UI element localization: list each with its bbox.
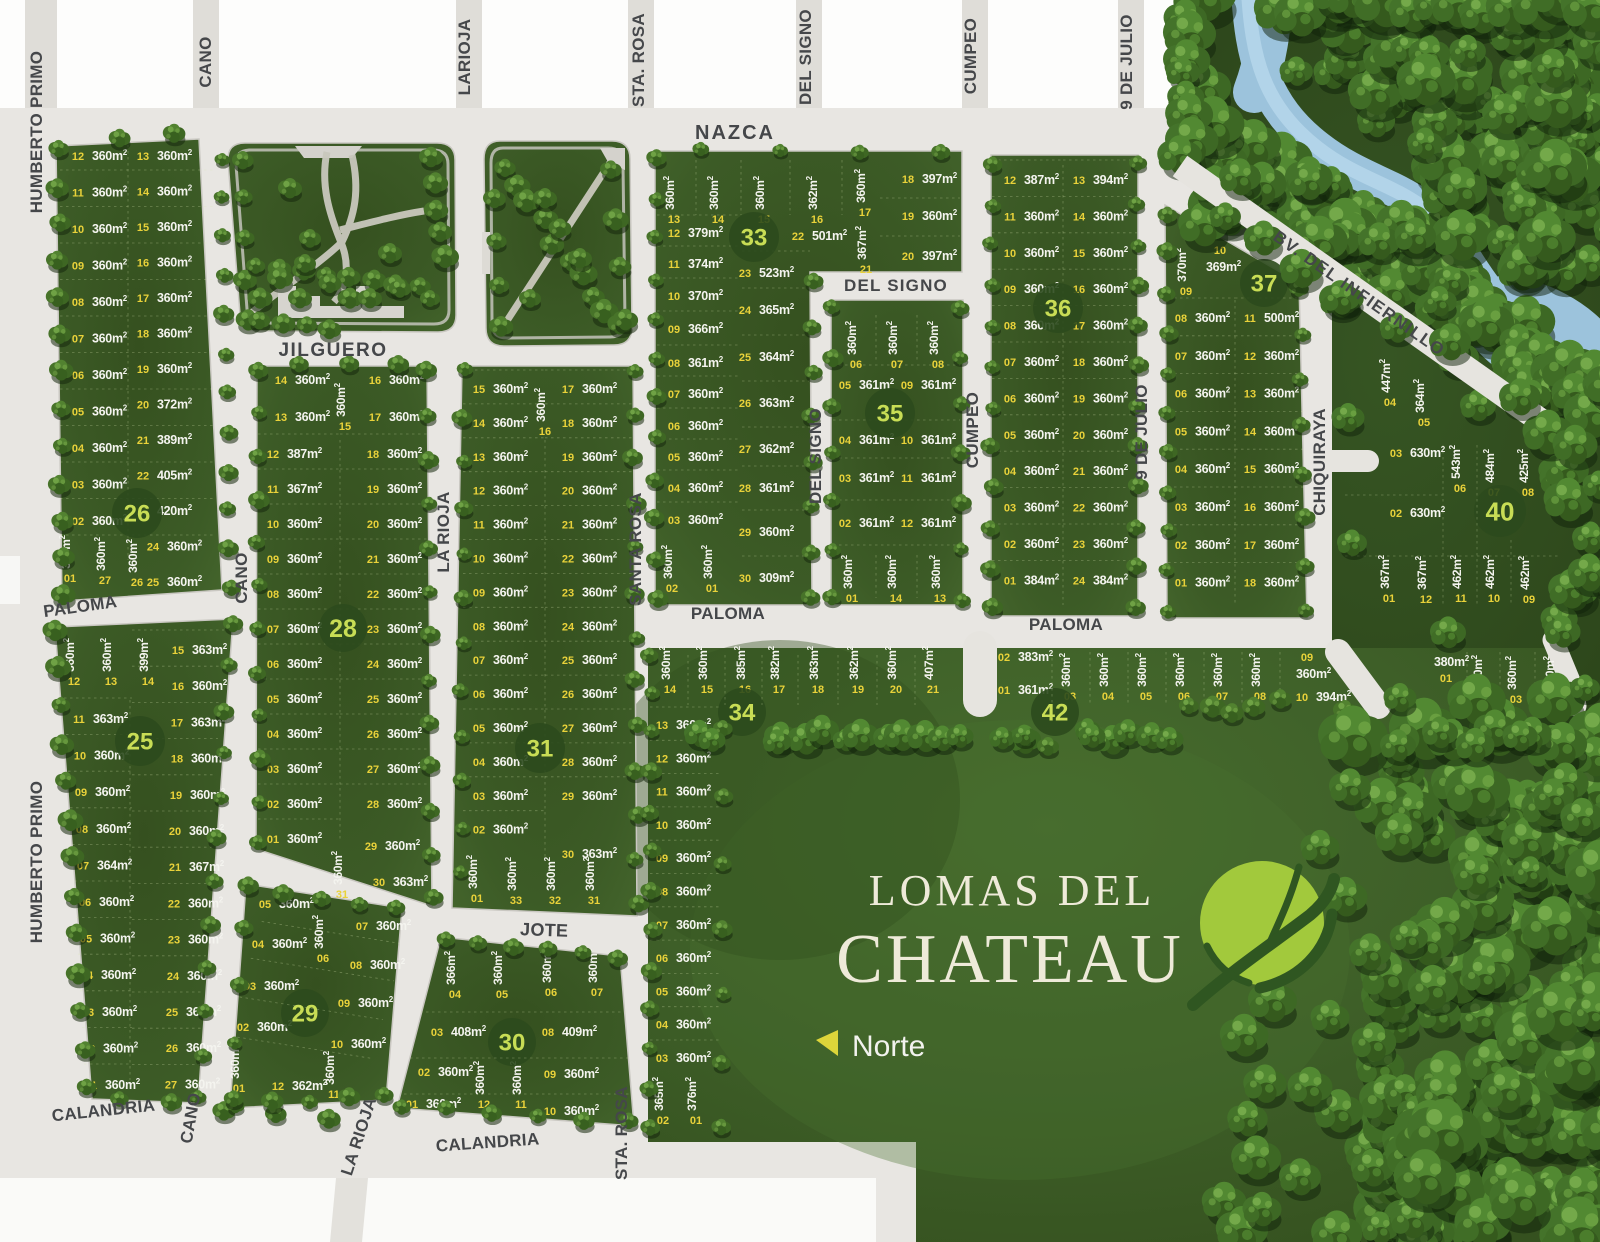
svg-text:22: 22 <box>168 898 180 910</box>
svg-text:361m2: 361m2 <box>859 470 895 485</box>
svg-text:16: 16 <box>172 681 184 693</box>
svg-text:425m2: 425m2 <box>1516 448 1531 483</box>
svg-text:26: 26 <box>131 577 143 589</box>
svg-text:35: 35 <box>877 401 904 428</box>
svg-text:08: 08 <box>267 589 279 601</box>
svg-text:26: 26 <box>367 729 379 741</box>
svg-text:12: 12 <box>68 676 80 688</box>
svg-text:523m2: 523m2 <box>759 265 795 280</box>
svg-text:08: 08 <box>473 621 485 633</box>
svg-text:360m2: 360m2 <box>688 512 724 527</box>
svg-text:05: 05 <box>839 380 851 392</box>
svg-text:367m2: 367m2 <box>1414 555 1429 590</box>
svg-text:09: 09 <box>72 261 84 273</box>
svg-text:14: 14 <box>275 375 288 387</box>
svg-text:04: 04 <box>668 483 681 495</box>
svg-text:384m2: 384m2 <box>1093 572 1129 587</box>
svg-text:360m2: 360m2 <box>295 409 331 424</box>
svg-text:09: 09 <box>1523 594 1535 606</box>
svg-text:360m2: 360m2 <box>1024 463 1060 478</box>
svg-text:04: 04 <box>72 443 85 455</box>
svg-text:360m2: 360m2 <box>1024 536 1060 551</box>
svg-text:11: 11 <box>668 259 680 271</box>
svg-text:360m2: 360m2 <box>926 320 941 355</box>
svg-text:11: 11 <box>72 188 84 200</box>
svg-text:21: 21 <box>1073 466 1085 478</box>
svg-text:05: 05 <box>496 989 508 1001</box>
svg-text:360m2: 360m2 <box>1096 652 1111 687</box>
svg-text:360m2: 360m2 <box>493 415 529 430</box>
svg-text:13: 13 <box>934 593 946 605</box>
svg-text:14: 14 <box>1073 211 1086 223</box>
svg-text:360m2: 360m2 <box>582 686 618 701</box>
svg-text:19: 19 <box>562 452 574 464</box>
svg-text:07: 07 <box>356 921 368 933</box>
svg-text:LARIOJA: LARIOJA <box>455 19 474 96</box>
svg-text:06: 06 <box>317 953 329 965</box>
svg-text:02: 02 <box>666 583 678 595</box>
svg-text:33: 33 <box>510 895 522 907</box>
svg-text:360m2: 360m2 <box>287 621 323 636</box>
svg-text:26: 26 <box>739 398 751 410</box>
svg-text:360m2: 360m2 <box>322 1050 337 1085</box>
svg-text:360m2: 360m2 <box>387 516 423 531</box>
svg-text:462m2: 462m2 <box>1449 554 1464 589</box>
svg-text:05: 05 <box>656 986 668 998</box>
svg-text:360m2: 360m2 <box>676 983 712 998</box>
svg-text:18: 18 <box>1073 357 1085 369</box>
svg-text:376m2: 376m2 <box>684 1076 699 1111</box>
svg-text:29: 29 <box>562 791 574 803</box>
svg-text:360m2: 360m2 <box>157 219 193 234</box>
svg-text:360m2: 360m2 <box>157 255 193 270</box>
svg-text:04: 04 <box>1384 397 1397 409</box>
svg-text:19: 19 <box>170 790 182 802</box>
svg-text:36: 36 <box>1045 296 1072 323</box>
svg-text:360m2: 360m2 <box>493 686 529 701</box>
svg-text:10: 10 <box>656 820 668 832</box>
svg-text:CHATEAU: CHATEAU <box>836 921 1184 998</box>
svg-text:20: 20 <box>890 684 902 696</box>
svg-text:360m2: 360m2 <box>188 895 224 910</box>
svg-text:360m2: 360m2 <box>1024 208 1060 223</box>
svg-text:01: 01 <box>1004 575 1016 587</box>
svg-text:361m2: 361m2 <box>921 432 957 447</box>
svg-text:500m2: 500m2 <box>1264 310 1300 325</box>
svg-text:01: 01 <box>1440 673 1452 685</box>
svg-text:03: 03 <box>1004 503 1016 515</box>
svg-text:DEL SIGNO: DEL SIGNO <box>796 9 815 105</box>
svg-text:27: 27 <box>165 1079 177 1091</box>
svg-text:20: 20 <box>367 519 379 531</box>
svg-text:25: 25 <box>147 577 159 589</box>
svg-text:19: 19 <box>902 211 914 223</box>
svg-text:16: 16 <box>539 426 551 438</box>
svg-text:360m2: 360m2 <box>676 817 712 832</box>
svg-text:20: 20 <box>1073 430 1085 442</box>
svg-text:20: 20 <box>902 251 914 263</box>
svg-text:364m2: 364m2 <box>97 857 133 872</box>
svg-text:360m2: 360m2 <box>99 894 135 909</box>
svg-text:23: 23 <box>168 935 180 947</box>
svg-text:360m2: 360m2 <box>533 387 548 422</box>
svg-text:360m2: 360m2 <box>101 967 137 982</box>
svg-text:17: 17 <box>1244 540 1256 552</box>
svg-text:08: 08 <box>668 358 680 370</box>
svg-text:20: 20 <box>562 486 574 498</box>
svg-text:19: 19 <box>137 364 149 376</box>
svg-text:17: 17 <box>137 293 149 305</box>
svg-text:17: 17 <box>859 207 871 219</box>
svg-text:09: 09 <box>338 998 350 1010</box>
svg-text:367m2: 367m2 <box>854 225 869 260</box>
svg-text:15: 15 <box>1073 248 1085 260</box>
svg-text:14: 14 <box>1244 426 1257 438</box>
svg-text:360m2: 360m2 <box>1296 666 1332 681</box>
svg-text:387m2: 387m2 <box>287 446 323 461</box>
svg-text:10: 10 <box>331 1039 343 1051</box>
svg-text:399m2: 399m2 <box>136 637 151 672</box>
svg-text:360m2: 360m2 <box>1195 461 1231 476</box>
svg-text:361m2: 361m2 <box>921 377 957 392</box>
svg-text:360m2: 360m2 <box>1093 463 1129 478</box>
svg-text:379m2: 379m2 <box>688 225 724 240</box>
svg-text:360m2: 360m2 <box>700 544 715 579</box>
svg-text:06: 06 <box>1175 389 1187 401</box>
svg-text:309m2: 309m2 <box>759 570 795 585</box>
svg-text:08: 08 <box>1004 321 1016 333</box>
svg-text:360m2: 360m2 <box>105 1077 141 1092</box>
svg-text:32: 32 <box>549 895 561 907</box>
svg-text:07: 07 <box>267 624 279 636</box>
svg-text:362m2: 362m2 <box>805 175 820 210</box>
svg-text:28: 28 <box>739 483 751 495</box>
svg-text:360m2: 360m2 <box>676 1050 712 1065</box>
svg-text:360m2: 360m2 <box>688 480 724 495</box>
svg-text:360m2: 360m2 <box>1093 536 1129 551</box>
svg-text:11: 11 <box>1244 313 1256 325</box>
svg-text:360m2: 360m2 <box>1093 245 1129 260</box>
svg-text:11: 11 <box>73 714 85 726</box>
svg-text:07: 07 <box>473 655 485 667</box>
svg-text:367m2: 367m2 <box>189 859 225 874</box>
svg-text:03: 03 <box>668 515 680 527</box>
svg-text:CANO: CANO <box>232 552 251 603</box>
svg-text:462m2: 462m2 <box>1482 554 1497 589</box>
svg-text:362m2: 362m2 <box>846 645 861 680</box>
svg-text:01: 01 <box>706 583 718 595</box>
svg-text:15: 15 <box>339 421 351 433</box>
svg-text:10: 10 <box>1004 248 1016 260</box>
svg-text:10: 10 <box>1296 692 1308 704</box>
svg-text:360m2: 360m2 <box>688 418 724 433</box>
svg-text:360m2: 360m2 <box>752 175 767 210</box>
svg-text:360m2: 360m2 <box>1093 318 1129 333</box>
svg-text:360m2: 360m2 <box>582 754 618 769</box>
svg-text:24: 24 <box>367 659 380 671</box>
svg-text:03: 03 <box>72 480 84 492</box>
svg-text:16: 16 <box>811 214 823 226</box>
svg-text:382m2: 382m2 <box>767 645 782 680</box>
svg-text:367m2: 367m2 <box>287 481 323 496</box>
svg-text:27: 27 <box>739 444 751 456</box>
svg-text:11: 11 <box>1455 593 1467 605</box>
svg-text:360m2: 360m2 <box>695 645 710 680</box>
svg-text:04: 04 <box>1004 466 1017 478</box>
svg-text:04: 04 <box>656 1020 669 1032</box>
svg-text:01: 01 <box>690 1115 702 1127</box>
svg-text:34: 34 <box>729 700 756 727</box>
svg-text:22: 22 <box>367 589 379 601</box>
svg-text:13: 13 <box>137 151 149 163</box>
svg-text:387m2: 387m2 <box>1024 172 1060 187</box>
svg-text:15: 15 <box>701 684 713 696</box>
svg-text:360m2: 360m2 <box>387 761 423 776</box>
svg-text:360m2: 360m2 <box>1093 281 1129 296</box>
svg-text:630m2: 630m2 <box>1410 505 1446 520</box>
svg-text:360m2: 360m2 <box>493 822 529 837</box>
svg-text:23: 23 <box>367 624 379 636</box>
svg-text:9 DE JULIO: 9 DE JULIO <box>1117 14 1136 110</box>
svg-text:360m2: 360m2 <box>493 483 529 498</box>
svg-text:360m2: 360m2 <box>582 856 597 891</box>
svg-text:14: 14 <box>137 187 150 199</box>
svg-text:18: 18 <box>171 754 183 766</box>
svg-text:360m2: 360m2 <box>1093 390 1129 405</box>
svg-text:484m2: 484m2 <box>1482 448 1497 483</box>
svg-text:360m2: 360m2 <box>1195 423 1231 438</box>
svg-text:10: 10 <box>901 435 913 447</box>
svg-text:360m2: 360m2 <box>676 884 712 899</box>
svg-text:06: 06 <box>72 370 84 382</box>
svg-text:10: 10 <box>1488 593 1500 605</box>
svg-text:30: 30 <box>373 877 385 889</box>
svg-text:11: 11 <box>473 520 485 532</box>
svg-text:360m2: 360m2 <box>157 326 193 341</box>
svg-text:02: 02 <box>839 518 851 530</box>
svg-text:409m2: 409m2 <box>562 1024 598 1039</box>
svg-text:08: 08 <box>72 297 84 309</box>
svg-text:20: 20 <box>169 826 181 838</box>
svg-text:360m2: 360m2 <box>92 404 128 419</box>
svg-text:10: 10 <box>668 291 680 303</box>
svg-text:21: 21 <box>860 264 872 276</box>
svg-text:543m2: 543m2 <box>1448 444 1463 479</box>
svg-text:28: 28 <box>329 615 357 643</box>
svg-text:360m2: 360m2 <box>287 551 323 566</box>
svg-text:360m2: 360m2 <box>103 1040 139 1055</box>
svg-text:360m2: 360m2 <box>490 950 505 985</box>
svg-text:13: 13 <box>275 412 287 424</box>
svg-text:360m2: 360m2 <box>1264 499 1300 514</box>
svg-text:360m2: 360m2 <box>99 637 114 672</box>
svg-text:360m2: 360m2 <box>885 320 900 355</box>
svg-text:01: 01 <box>267 834 279 846</box>
svg-text:360m2: 360m2 <box>92 440 128 455</box>
svg-text:08: 08 <box>542 1027 554 1039</box>
svg-text:360m2: 360m2 <box>676 784 712 799</box>
svg-text:360m2: 360m2 <box>658 645 673 680</box>
svg-text:12: 12 <box>473 486 485 498</box>
svg-text:367m2: 367m2 <box>1377 554 1392 589</box>
svg-text:12: 12 <box>272 1081 284 1093</box>
svg-text:02: 02 <box>237 1022 249 1034</box>
svg-text:27: 27 <box>562 723 574 735</box>
svg-text:360m2: 360m2 <box>387 446 423 461</box>
svg-text:09: 09 <box>1301 652 1313 664</box>
svg-text:360m2: 360m2 <box>582 720 618 735</box>
svg-text:360m2: 360m2 <box>192 678 228 693</box>
svg-text:09: 09 <box>1180 286 1192 298</box>
svg-text:40: 40 <box>1486 496 1515 526</box>
svg-text:360m2: 360m2 <box>330 850 345 885</box>
svg-text:03: 03 <box>1390 448 1402 460</box>
svg-text:370m2: 370m2 <box>688 288 724 303</box>
svg-text:360m2: 360m2 <box>582 788 618 803</box>
svg-text:394m2: 394m2 <box>1093 172 1129 187</box>
svg-text:360m2: 360m2 <box>333 382 348 417</box>
svg-text:02: 02 <box>1175 540 1187 552</box>
svg-text:04: 04 <box>1175 464 1188 476</box>
svg-text:360m2: 360m2 <box>1093 427 1129 442</box>
svg-text:360m2: 360m2 <box>582 652 618 667</box>
svg-text:360m2: 360m2 <box>287 761 323 776</box>
svg-text:360m2: 360m2 <box>1093 354 1129 369</box>
svg-text:42: 42 <box>1042 700 1069 727</box>
svg-text:360m2: 360m2 <box>1024 245 1060 260</box>
svg-text:Norte: Norte <box>852 1030 925 1063</box>
svg-text:18: 18 <box>137 329 149 341</box>
svg-text:05: 05 <box>473 723 485 735</box>
svg-text:17: 17 <box>773 684 785 696</box>
svg-text:10: 10 <box>267 519 279 531</box>
svg-text:360m2: 360m2 <box>1195 310 1231 325</box>
svg-text:02: 02 <box>418 1067 430 1079</box>
svg-text:372m2: 372m2 <box>157 397 193 412</box>
svg-text:31: 31 <box>527 736 554 763</box>
svg-text:360m2: 360m2 <box>157 148 193 163</box>
svg-text:25: 25 <box>367 694 379 706</box>
svg-text:04: 04 <box>252 939 265 951</box>
svg-text:04: 04 <box>1102 691 1115 703</box>
svg-text:360m2: 360m2 <box>582 618 618 633</box>
svg-text:31: 31 <box>588 895 600 907</box>
svg-text:30: 30 <box>562 849 574 861</box>
svg-text:360m2: 360m2 <box>370 957 406 972</box>
svg-text:10: 10 <box>74 751 86 763</box>
svg-text:363m2: 363m2 <box>806 645 821 680</box>
svg-text:360m2: 360m2 <box>922 208 958 223</box>
svg-text:360m2: 360m2 <box>1024 354 1060 369</box>
svg-text:07: 07 <box>1004 357 1016 369</box>
svg-text:28: 28 <box>562 757 574 769</box>
svg-text:13: 13 <box>1244 389 1256 401</box>
svg-text:12: 12 <box>267 449 279 461</box>
svg-text:360m2: 360m2 <box>582 415 618 430</box>
svg-text:08: 08 <box>1175 313 1187 325</box>
svg-text:STA. ROSA: STA. ROSA <box>629 13 648 107</box>
svg-text:397m2: 397m2 <box>922 171 958 186</box>
svg-text:360m2: 360m2 <box>157 361 193 376</box>
svg-text:360m2: 360m2 <box>287 796 323 811</box>
svg-text:360m2: 360m2 <box>543 856 558 891</box>
svg-text:360m2: 360m2 <box>1024 390 1060 405</box>
svg-text:360m2: 360m2 <box>582 483 618 498</box>
svg-text:03: 03 <box>1175 502 1187 514</box>
svg-text:360m2: 360m2 <box>1093 208 1129 223</box>
svg-text:08: 08 <box>1522 487 1534 499</box>
svg-text:360m2: 360m2 <box>92 331 128 346</box>
svg-text:361m2: 361m2 <box>921 470 957 485</box>
svg-text:25: 25 <box>562 655 574 667</box>
svg-text:HUMBERTO PRIMO: HUMBERTO PRIMO <box>27 781 46 944</box>
svg-text:360m2: 360m2 <box>287 656 323 671</box>
svg-text:28: 28 <box>367 799 379 811</box>
svg-text:CUMPEO: CUMPEO <box>963 392 982 468</box>
svg-text:22: 22 <box>792 231 804 243</box>
svg-text:397m2: 397m2 <box>922 248 958 263</box>
svg-text:16: 16 <box>1244 502 1256 514</box>
svg-text:10: 10 <box>473 554 485 566</box>
svg-text:09: 09 <box>1004 284 1016 296</box>
svg-text:374m2: 374m2 <box>688 256 724 271</box>
svg-text:11: 11 <box>515 1099 527 1111</box>
svg-text:360m2: 360m2 <box>582 449 618 464</box>
svg-text:25: 25 <box>739 352 751 364</box>
svg-text:360m2: 360m2 <box>272 936 308 951</box>
svg-text:12: 12 <box>656 753 668 765</box>
svg-text:02: 02 <box>267 799 279 811</box>
svg-text:360m2: 360m2 <box>493 584 529 599</box>
svg-text:360m2: 360m2 <box>676 850 712 865</box>
svg-text:361m2: 361m2 <box>688 355 724 370</box>
svg-text:13: 13 <box>668 214 680 226</box>
svg-text:05: 05 <box>1418 417 1430 429</box>
svg-text:9 DE JULIO: 9 DE JULIO <box>1132 384 1151 480</box>
svg-text:360m2: 360m2 <box>92 294 128 309</box>
svg-text:360m2: 360m2 <box>676 917 712 932</box>
svg-text:09: 09 <box>544 1069 556 1081</box>
svg-text:360m2: 360m2 <box>582 584 618 599</box>
svg-text:NAZCA: NAZCA <box>695 122 775 144</box>
svg-text:407m2: 407m2 <box>921 645 936 680</box>
svg-text:12: 12 <box>1244 351 1256 363</box>
svg-text:24: 24 <box>562 621 575 633</box>
svg-text:PALOMA: PALOMA <box>691 604 765 623</box>
svg-text:09: 09 <box>668 324 680 336</box>
svg-text:360m2: 360m2 <box>688 386 724 401</box>
svg-text:21: 21 <box>137 435 149 447</box>
svg-text:364m2: 364m2 <box>1412 378 1427 413</box>
svg-text:26: 26 <box>124 501 151 528</box>
svg-text:21: 21 <box>562 520 574 532</box>
svg-text:360m2: 360m2 <box>582 551 618 566</box>
svg-text:18: 18 <box>367 449 379 461</box>
svg-text:360m2: 360m2 <box>1195 348 1231 363</box>
svg-text:19: 19 <box>852 684 864 696</box>
svg-text:CUMPEO: CUMPEO <box>961 18 980 94</box>
svg-text:360m2: 360m2 <box>387 586 423 601</box>
svg-text:23: 23 <box>739 268 751 280</box>
svg-text:360m2: 360m2 <box>96 821 132 836</box>
svg-text:383m2: 383m2 <box>1018 649 1054 664</box>
svg-text:360m2: 360m2 <box>167 539 203 554</box>
svg-text:360m2: 360m2 <box>358 995 394 1010</box>
svg-text:06: 06 <box>1454 483 1466 495</box>
svg-text:24: 24 <box>147 542 160 554</box>
svg-text:07: 07 <box>1175 351 1187 363</box>
svg-text:06: 06 <box>668 421 680 433</box>
